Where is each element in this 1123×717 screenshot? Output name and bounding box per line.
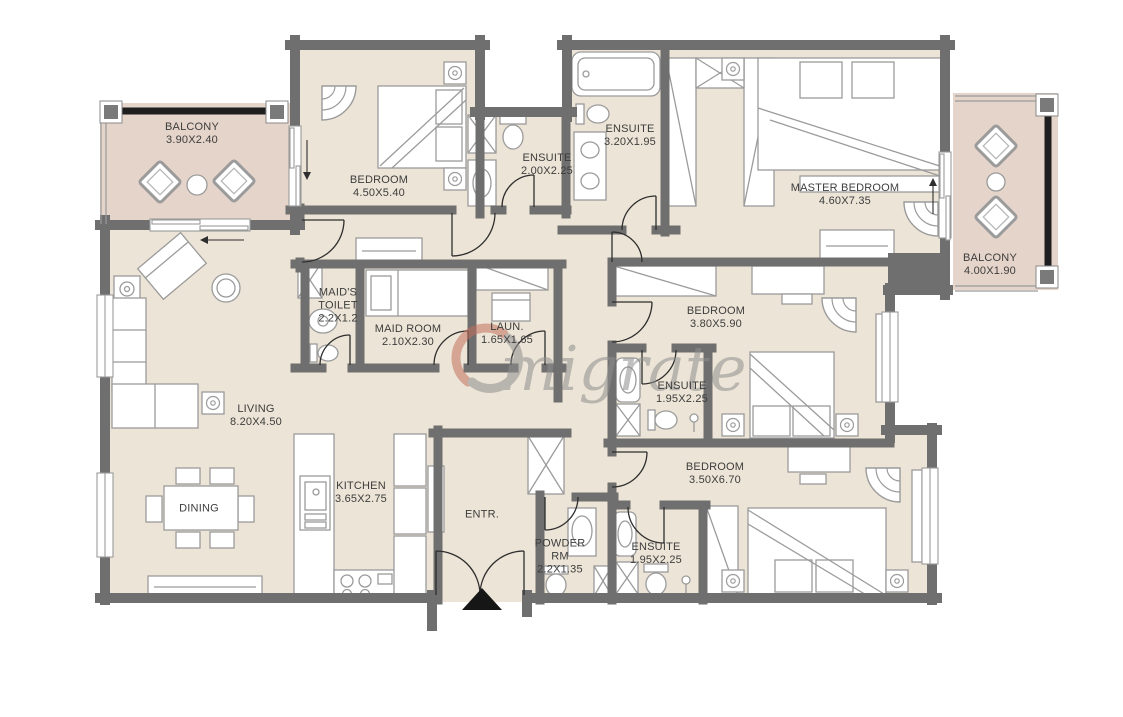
nightstand-icon (722, 58, 744, 80)
nightstand-icon (444, 62, 466, 84)
toilet-icon (544, 566, 568, 596)
side-table-icon (202, 392, 224, 414)
toilet-icon (648, 410, 677, 430)
balcony-table-icon (987, 173, 1005, 191)
toilet-icon (576, 104, 609, 124)
bed-icon (748, 508, 886, 596)
closet-icon (528, 436, 564, 494)
window-sill (912, 470, 922, 562)
shower-icon (616, 404, 640, 436)
window (922, 468, 938, 564)
window (97, 295, 113, 377)
nightstand-icon (886, 570, 908, 592)
toilet-icon (310, 344, 338, 362)
floor-plan: migrate BALCONY3.90X2.40 BEDROOM4.50X5.4… (0, 0, 1123, 717)
balcony-right-floor (953, 93, 1058, 290)
watermark: migrate (456, 328, 747, 405)
nightstand-icon (836, 414, 858, 436)
watermark-text: migrate (500, 332, 747, 405)
wardrobe-icon (614, 266, 716, 296)
railing-post (100, 101, 122, 123)
toilet-icon (644, 564, 668, 595)
window (97, 473, 113, 557)
bed-icon (750, 352, 834, 438)
window (882, 312, 898, 402)
nightstand-icon (722, 570, 744, 592)
nightstand-icon (444, 168, 466, 190)
kitchen-sink-icon (300, 476, 330, 530)
sink-icon (309, 309, 337, 333)
balcony-left-floor (100, 103, 290, 230)
nightstand-icon (722, 414, 744, 436)
railing-post (1036, 266, 1058, 288)
coffee-table-icon (212, 274, 240, 302)
floorplan-canvas: migrate (0, 0, 1123, 717)
desk-icon (820, 230, 894, 262)
washer-icon (492, 293, 530, 321)
sink-icon (574, 132, 606, 200)
bathtub-icon (572, 52, 660, 96)
balcony-table-icon (187, 175, 207, 195)
railing-post (266, 101, 288, 123)
bed-icon (366, 270, 468, 316)
railing-post (1036, 94, 1058, 116)
sink-icon (614, 512, 636, 556)
bed-icon (378, 86, 466, 168)
shower-icon (616, 562, 638, 594)
kitchen-units (394, 434, 426, 598)
